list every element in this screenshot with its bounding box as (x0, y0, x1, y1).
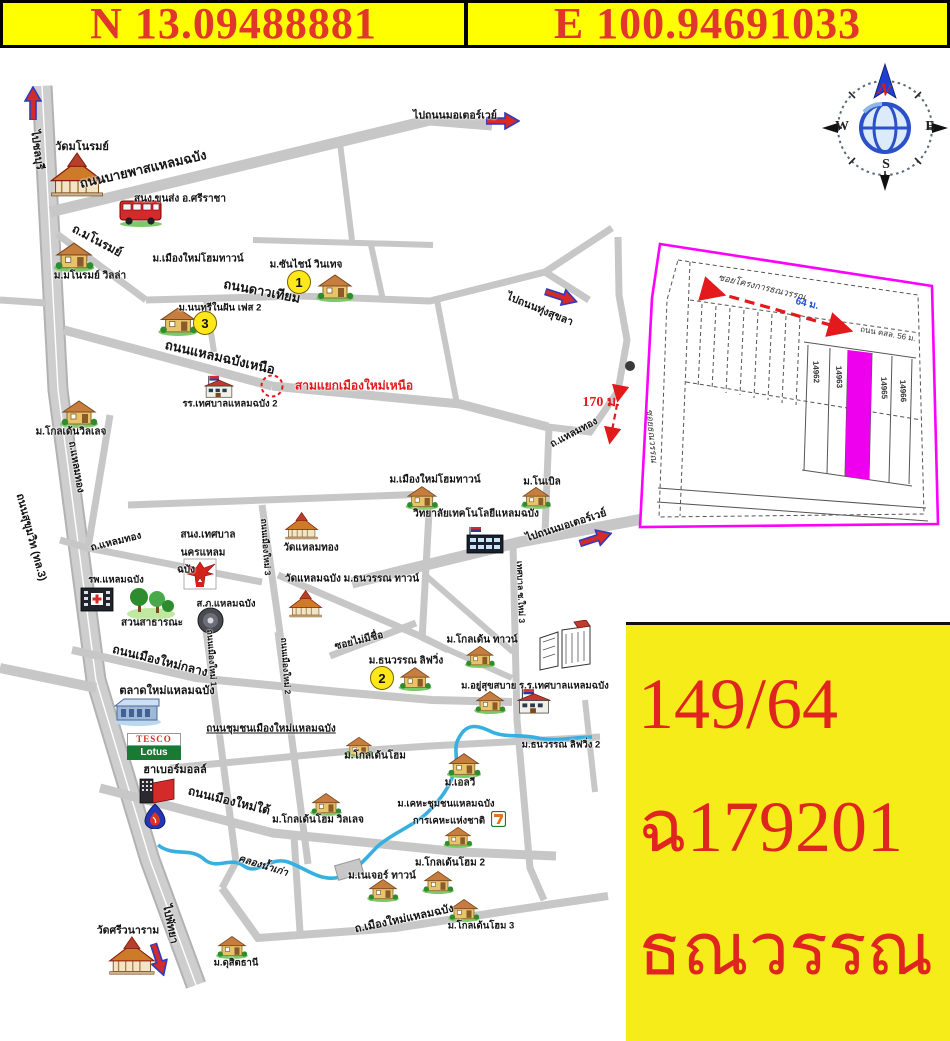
map-label: ม.เมืองใหม่โฮมทาวน์ (389, 473, 480, 488)
map-label: การเคหะแห่งชาติ (413, 814, 485, 829)
map-label: ม.โกลเด้น ทาวน์ (446, 633, 517, 648)
map-label: ม.เคหะชุมชนแหลมฉบัง (397, 797, 494, 812)
map-label: เทศบาล ซ.ใหม่ 3 (513, 561, 529, 624)
map-label: วัดแหลมทอง (283, 541, 338, 556)
compass-w: W (835, 119, 849, 135)
house-icon (460, 644, 500, 668)
map-label: วัดแหลมฉบัง ม.ธนวรรณ ทาวน์ (285, 572, 419, 587)
market-icon (114, 696, 162, 726)
map-label: นครแหลม (181, 546, 226, 561)
map-label: สนง.เทศบาล (180, 528, 235, 543)
map-label: สนง.ขนส่ง อ.ศรีราชา (134, 192, 226, 207)
tesco-lotus-logo: TESCO Lotus (127, 733, 181, 760)
numbered-marker: 3 (193, 311, 217, 335)
deed-number: ฉ179201 (638, 791, 944, 863)
seven-icon (491, 811, 506, 827)
school-icon (203, 375, 235, 399)
house-icon (396, 665, 434, 691)
compass-e: E (925, 119, 934, 135)
map-label: ไปถนนมอเตอร์เวย์ (413, 107, 497, 124)
lotus-label: Lotus (127, 746, 181, 760)
factory-icon (538, 620, 596, 672)
numbered-marker: 2 (370, 666, 394, 690)
map-label: ตลาดใหม่แหลมฉบัง (119, 681, 214, 699)
mall-icon (138, 777, 176, 805)
plot-number: 14966 (898, 380, 908, 403)
hospital-icon (79, 585, 115, 613)
map-label: รพ.แหลมฉบัง (88, 573, 144, 588)
house-icon (314, 272, 356, 302)
map-label: ม.ซันไชน์ วินเทจ (270, 258, 343, 273)
map-label: สามแยกเมืองใหม่เหนือ (295, 377, 413, 396)
house-icon (419, 869, 457, 894)
map-label: ม.ธนวรรณ ลิฟวิ่ง 2 (522, 738, 601, 753)
map-label: ม.มโนรมย์ วิลล่า (54, 269, 126, 284)
map-label: ม.เนเจอร์ ทาวน์ (348, 869, 416, 884)
map-label: ม.ดุสิตธานี (214, 956, 259, 971)
map-label: รร.เทศบาลแหลมฉบัง 2 (182, 397, 277, 412)
map-label: สวนสาธารณะ (121, 616, 183, 631)
plot-address: 149/64 (638, 668, 944, 740)
map-label: วัดศรีวนาราม (97, 922, 159, 939)
map-label: ม.โกลเด้นวิลเลจ (36, 425, 107, 440)
map-label: ม.เอลวี (445, 776, 476, 791)
plot-number: 14965 (879, 377, 889, 400)
map-label: วิทยาลัยเทคโนโลยีแหลมฉบัง (413, 507, 539, 522)
map-label: ม.นนทรีในฝัน เฟส 2 (179, 301, 262, 316)
numbered-marker: 1 (287, 270, 311, 294)
map-label: ม.โกลเด้นโฮม (344, 749, 406, 764)
tesco-label: TESCO (127, 733, 181, 746)
map-page: N 13.09488881 E 100.94691033 (0, 0, 950, 1041)
map-label: ถนนชุมชนเมืองใหม่แหลมฉบัง (206, 722, 336, 737)
map-label: ม.เมืองใหม่โฮมทาวน์ (152, 252, 243, 267)
plot-number: 14963 (834, 366, 844, 389)
map-label: ม.โกลเด้นโฮม 2 (415, 856, 485, 871)
compass-s: S (882, 157, 890, 173)
distance-label: 170 ม. (582, 391, 619, 413)
map-label: ส.ภ.แหลมฉบัง (197, 597, 256, 612)
college-icon (465, 527, 505, 555)
house-icon (58, 398, 100, 428)
map-label: ม.โกลเด้นโฮม 3 (448, 919, 515, 934)
house-icon (446, 751, 482, 778)
map-label: ม.โกลเด้นโฮม วิลเลจ (272, 813, 364, 828)
plot-number: 14962 (811, 361, 821, 384)
temple-icon (99, 936, 163, 976)
map-label: ม.อยู่สุขสบาย ร.ร.เทศบาลแหลมฉบัง (461, 679, 609, 694)
property-info-box: 149/64 ฉ179201 ธณวรรณ (626, 622, 950, 1041)
temple-icon (286, 586, 324, 622)
map-label: ฉบัง (177, 563, 195, 578)
ptt-icon (144, 803, 166, 829)
map-label: วัดมโนรมย์ (55, 137, 109, 155)
temple-icon (282, 509, 320, 543)
project-name: ธณวรรณ (638, 914, 944, 986)
road-node (625, 361, 635, 371)
map-label: ม.โนเบิล (523, 475, 560, 490)
map-label: ฮาเบอร์มอลล์ (143, 760, 207, 778)
